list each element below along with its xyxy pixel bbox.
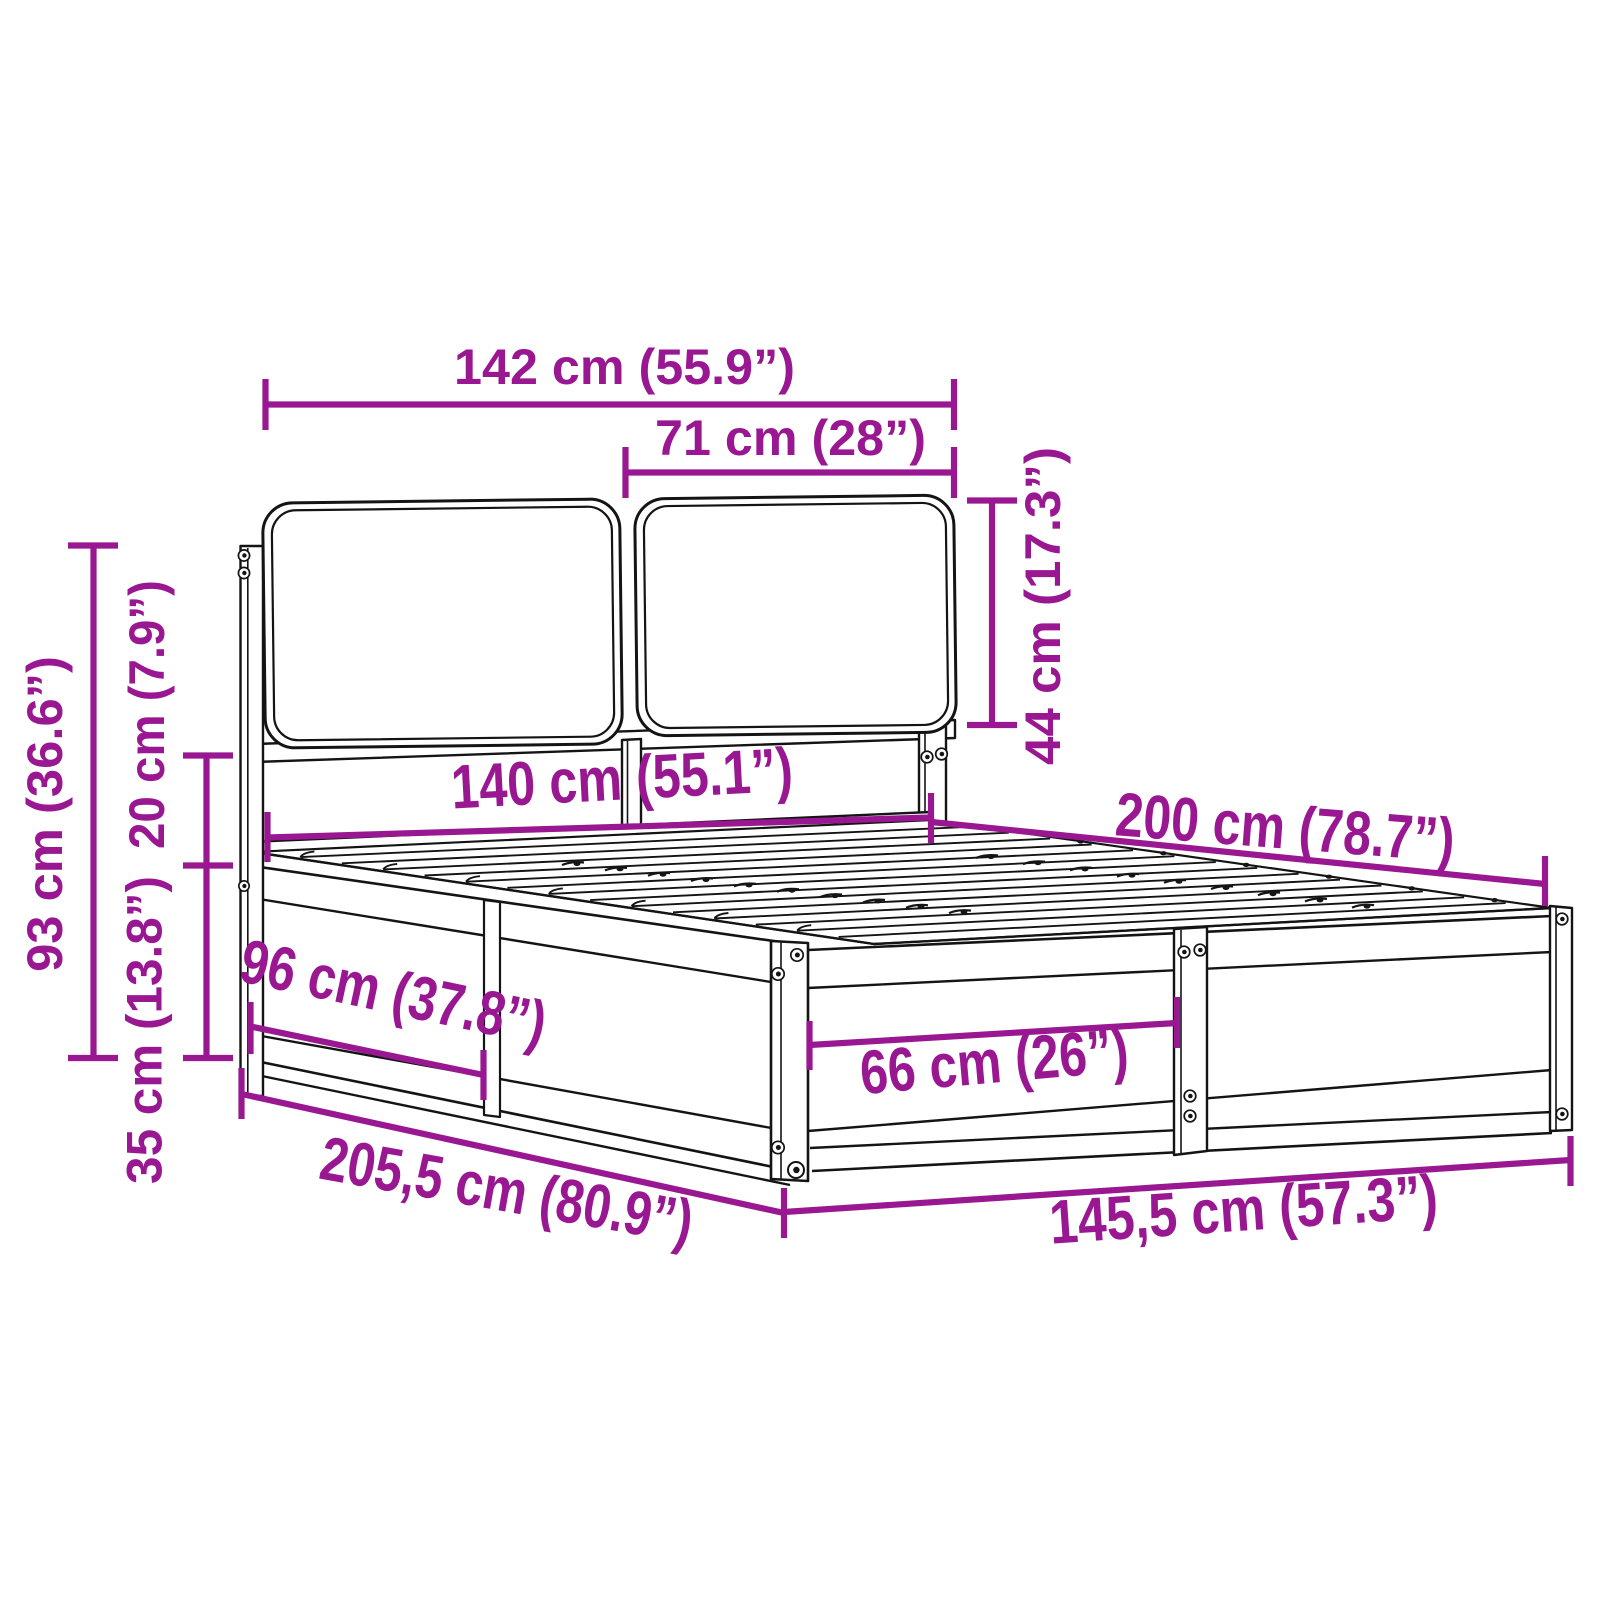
svg-text:20 cm (7.9”): 20 cm (7.9”) (120, 580, 175, 849)
svg-text:93 cm (36.6”): 93 cm (36.6”) (16, 656, 73, 972)
svg-text:44 cm (17.3”): 44 cm (17.3”) (1014, 447, 1070, 765)
svg-text:142 cm (55.9”): 142 cm (55.9”) (454, 339, 795, 395)
svg-text:35 cm (13.8”): 35 cm (13.8”) (116, 876, 172, 1184)
svg-text:71 cm (28”): 71 cm (28”) (655, 410, 926, 466)
